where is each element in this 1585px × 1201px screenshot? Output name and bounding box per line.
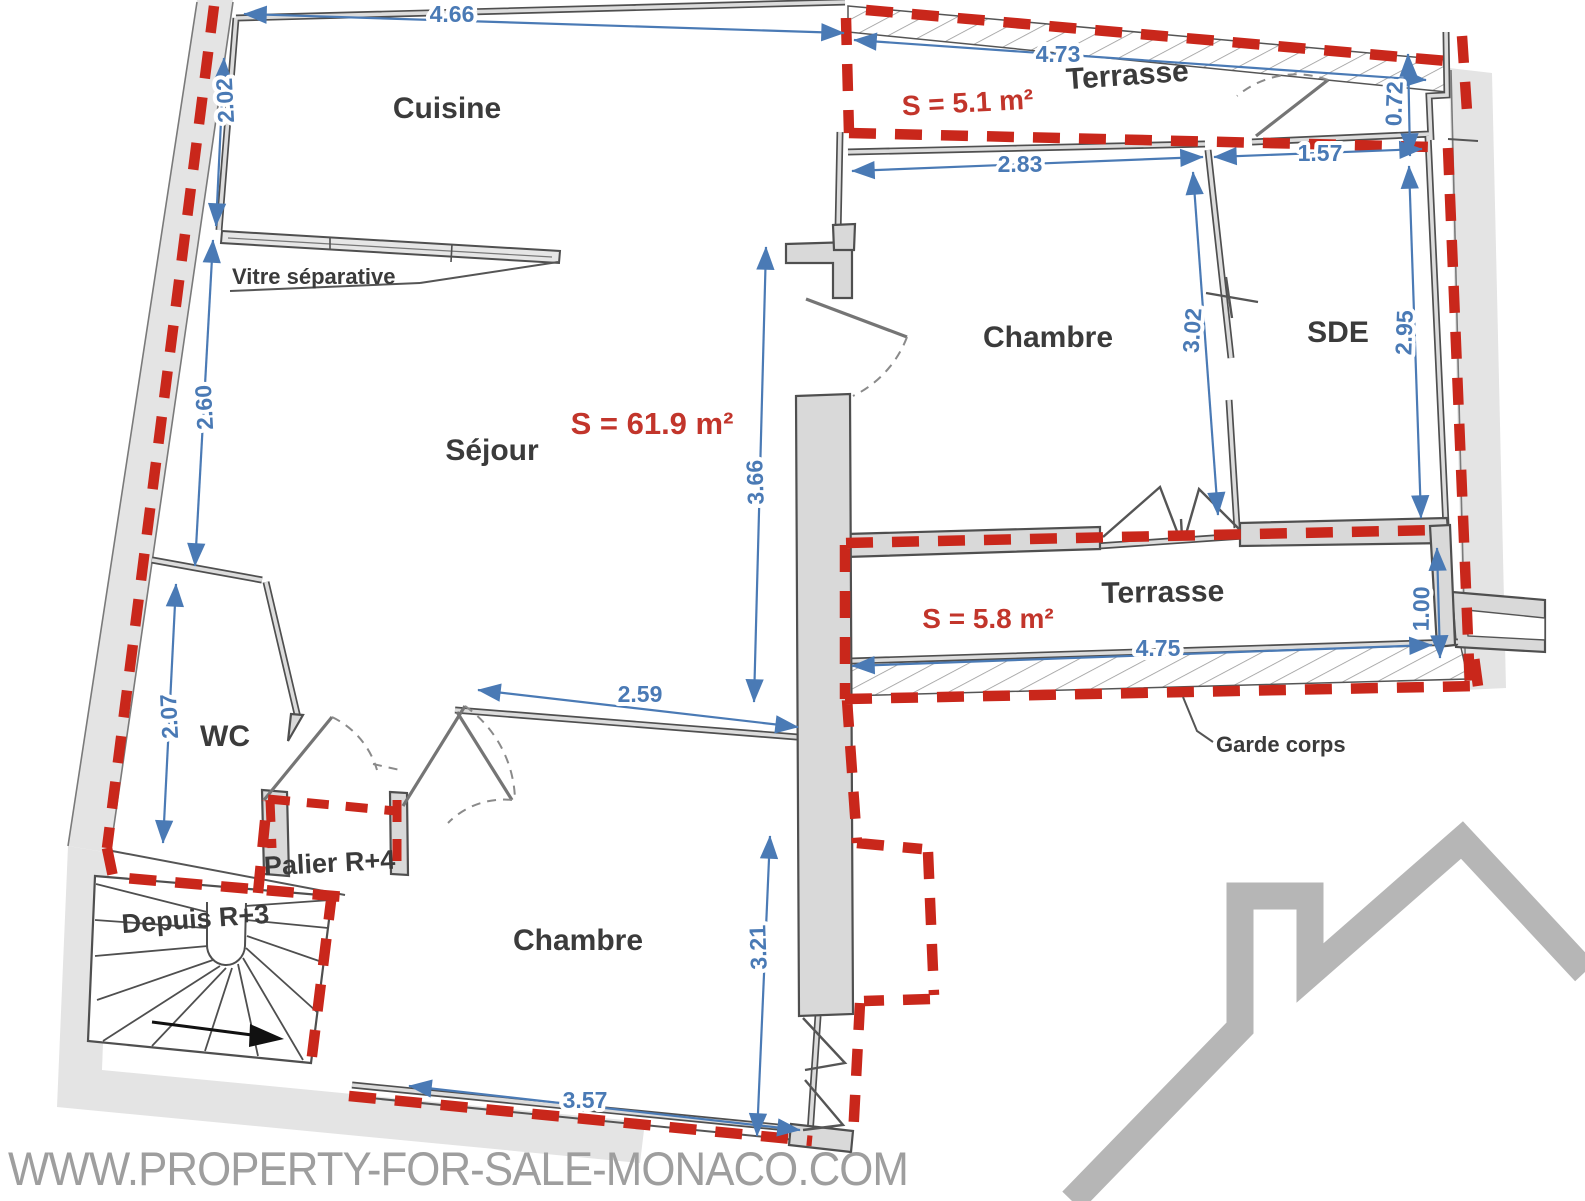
annotation-vitre-separative: Vitre séparative (232, 264, 395, 289)
room-label-wc: WC (200, 720, 250, 753)
dim-sde-width: 1.57 (1298, 140, 1343, 166)
area-terrasse-top: S = 5.1 m² (901, 84, 1034, 122)
house-roof-logo-icon (1072, 840, 1585, 1201)
area-sejour: S = 61.9 m² (571, 406, 734, 441)
dim-sejour-bottom: 2.59 (618, 681, 663, 707)
dim-sejour-height: 3.66 (741, 459, 769, 505)
room-label-sde: SDE (1307, 316, 1369, 349)
dim-chambre-bottom-width: 3.57 (563, 1087, 608, 1113)
garde-corps-leader (1183, 697, 1213, 742)
room-label-terrasse-mid: Terrasse (1101, 575, 1224, 610)
room-label-cuisine: Cuisine (393, 92, 501, 125)
dim-left-lower: 2.07 (155, 693, 183, 739)
room-label-chambre-top: Chambre (983, 321, 1113, 354)
annotation-garde-corps: Garde corps (1216, 732, 1346, 757)
dim-sde-height: 2.95 (1390, 310, 1418, 356)
floor-plan-page: 4.66 2.02 2.60 2.07 4.73 0.72 2.83 1.57 … (0, 0, 1585, 1201)
dim-terrasse-top-right: 0.72 (1380, 81, 1408, 127)
dim-chambre-top-height: 3.02 (1177, 307, 1206, 353)
sde-fixture-cross (1206, 277, 1258, 318)
room-label-terrasse-top: Terrasse (1065, 55, 1190, 96)
dim-chambre-top-width: 2.83 (998, 151, 1043, 177)
dim-top-cuisine: 4.66 (430, 1, 475, 27)
dim-chambre-bottom-height: 3.21 (744, 924, 772, 970)
dim-terrasse-mid-width: 4.75 (1136, 635, 1181, 661)
floor-plan-drawing: 4.66 2.02 2.60 2.07 4.73 0.72 2.83 1.57 … (0, 0, 1585, 1201)
area-terrasse-mid: S = 5.8 m² (922, 603, 1054, 634)
room-label-palier: Palier R+4 (263, 845, 396, 882)
dim-terrasse-mid-depth: 1.00 (1408, 586, 1435, 631)
dim-left-upper: 2.02 (211, 77, 239, 123)
dim-left-mid: 2.60 (190, 384, 218, 430)
watermark-text: WWW.PROPERTY-FOR-SALE-MONACO.COM (8, 1142, 908, 1195)
room-label-sejour: Séjour (445, 434, 539, 467)
room-label-chambre-bottom: Chambre (513, 924, 643, 957)
